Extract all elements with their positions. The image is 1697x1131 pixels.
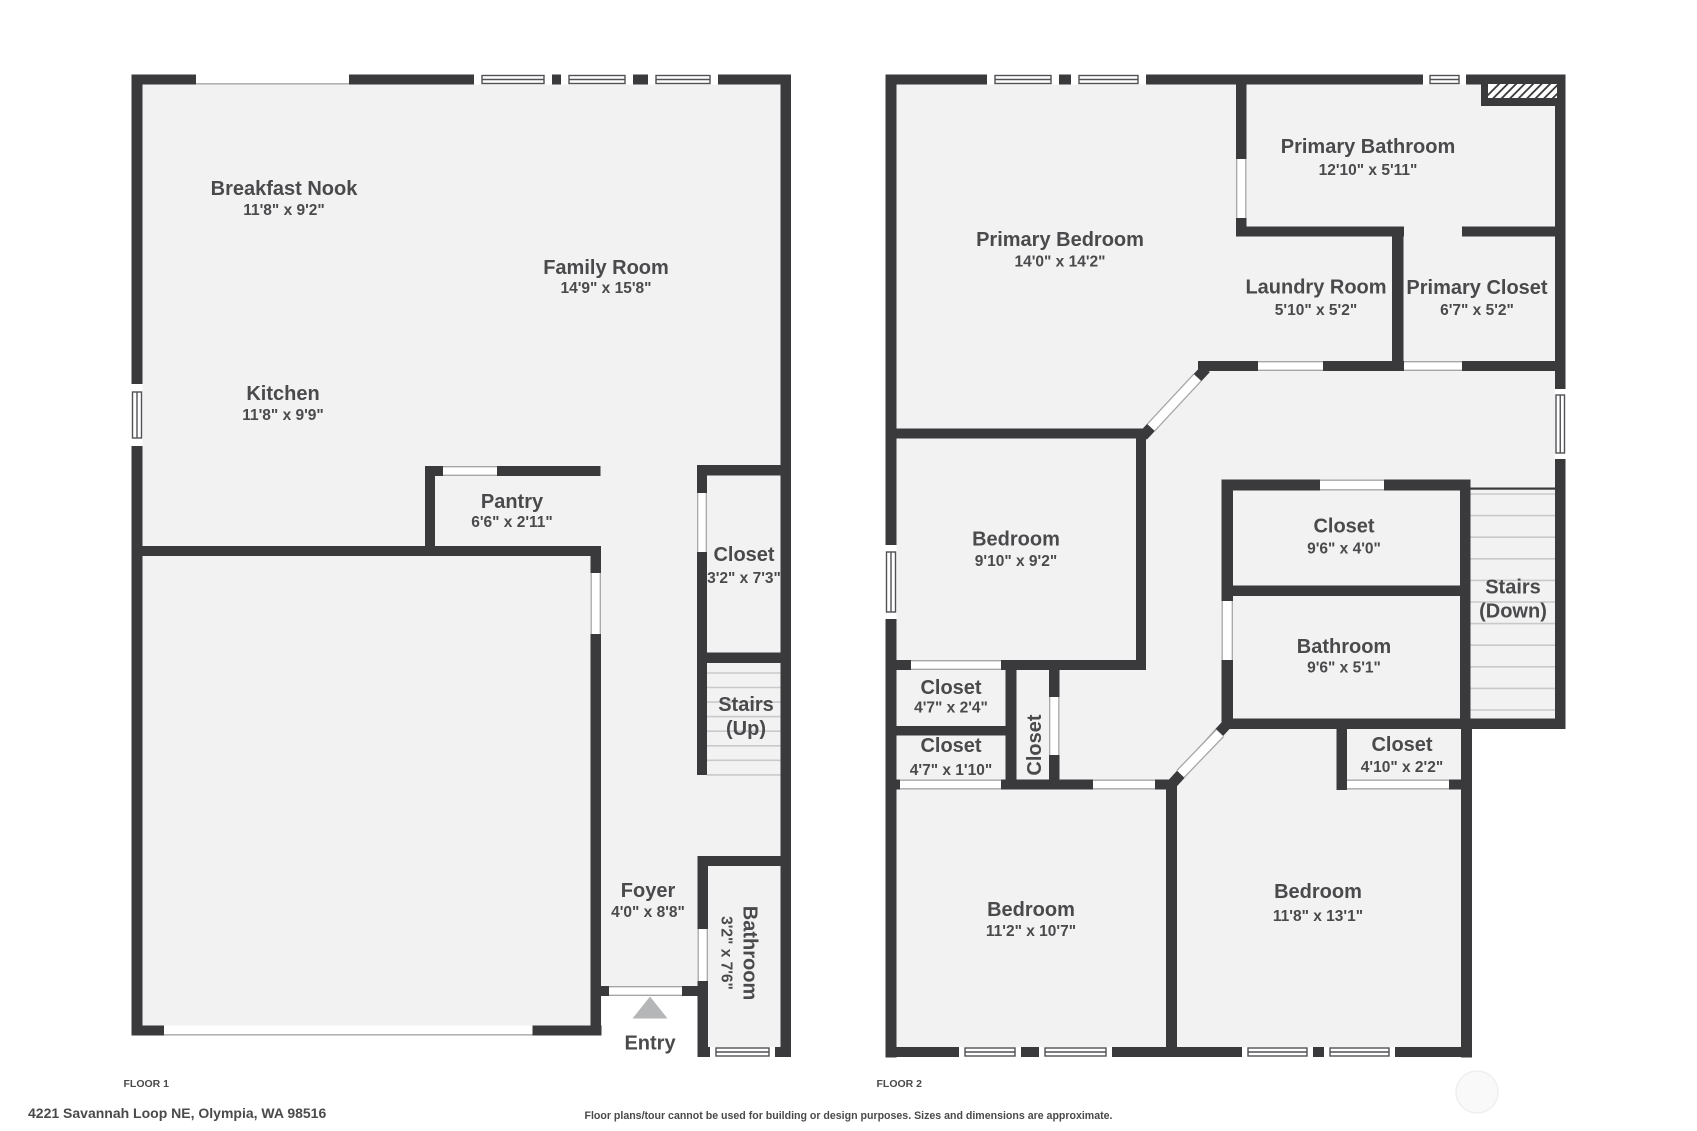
svg-text:Family Room: Family Room [543, 257, 669, 279]
svg-text:Pantry: Pantry [481, 491, 544, 513]
svg-text:9'6" x 5'1": 9'6" x 5'1" [1307, 660, 1381, 677]
svg-text:Closet: Closet [920, 735, 981, 757]
svg-text:Bedroom: Bedroom [1274, 881, 1362, 903]
svg-text:3'2" x 7'6": 3'2" x 7'6" [718, 916, 735, 990]
svg-text:4'7" x 2'4": 4'7" x 2'4" [914, 700, 988, 717]
svg-text:Foyer: Foyer [621, 880, 676, 902]
svg-text:Stairs: Stairs [718, 694, 774, 716]
svg-text:14'0" x 14'2": 14'0" x 14'2" [1014, 254, 1105, 271]
svg-text:Stairs: Stairs [1485, 577, 1541, 599]
svg-text:3'2" x 7'3": 3'2" x 7'3" [707, 570, 781, 587]
svg-text:Laundry Room: Laundry Room [1245, 277, 1386, 299]
svg-text:Closet: Closet [1024, 714, 1046, 775]
svg-text:Breakfast Nook: Breakfast Nook [211, 178, 359, 200]
svg-text:Bathroom: Bathroom [739, 906, 761, 1000]
svg-text:Primary Bedroom: Primary Bedroom [976, 229, 1144, 251]
svg-text:Floor plans/tour cannot be use: Floor plans/tour cannot be used for buil… [584, 1110, 1112, 1122]
svg-text:Closet: Closet [920, 677, 981, 699]
svg-text:Bathroom: Bathroom [1297, 636, 1391, 658]
svg-text:Closet: Closet [713, 544, 774, 566]
svg-text:6'7" x 5'2": 6'7" x 5'2" [1440, 302, 1514, 319]
svg-text:Primary Closet: Primary Closet [1406, 277, 1548, 299]
svg-text:9'10" x 9'2": 9'10" x 9'2" [975, 553, 1057, 570]
svg-text:11'2" x 10'7": 11'2" x 10'7" [986, 923, 1076, 940]
svg-text:FLOOR 2: FLOOR 2 [877, 1078, 923, 1090]
svg-text:4'0" x 8'8": 4'0" x 8'8" [611, 904, 685, 921]
svg-text:Primary Bathroom: Primary Bathroom [1281, 136, 1456, 158]
svg-text:12'10" x 5'11": 12'10" x 5'11" [1319, 162, 1418, 179]
svg-text:Kitchen: Kitchen [246, 383, 319, 405]
svg-text:4'7" x 1'10": 4'7" x 1'10" [910, 762, 992, 779]
svg-text:(Down): (Down) [1479, 601, 1547, 623]
svg-text:4221 Savannah Loop NE, Olympia: 4221 Savannah Loop NE, Olympia, WA 98516 [28, 1105, 326, 1121]
svg-text:Bedroom: Bedroom [987, 899, 1075, 921]
svg-text:9'6" x 4'0": 9'6" x 4'0" [1307, 541, 1381, 558]
svg-text:11'8" x 9'9": 11'8" x 9'9" [242, 407, 324, 424]
svg-text:Closet: Closet [1371, 734, 1432, 756]
svg-text:6'6" x 2'11": 6'6" x 2'11" [471, 514, 553, 531]
svg-text:11'8" x 9'2": 11'8" x 9'2" [243, 202, 325, 219]
svg-text:4'10" x 2'2": 4'10" x 2'2" [1361, 759, 1443, 776]
svg-text:Entry: Entry [624, 1033, 676, 1055]
svg-text:14'9" x 15'8": 14'9" x 15'8" [560, 280, 651, 297]
svg-text:5'10" x 5'2": 5'10" x 5'2" [1275, 302, 1357, 319]
svg-text:Closet: Closet [1313, 516, 1374, 538]
svg-text:(Up): (Up) [726, 718, 766, 740]
svg-text:FLOOR 1: FLOOR 1 [124, 1078, 170, 1090]
svg-text:Bedroom: Bedroom [972, 529, 1060, 551]
svg-text:11'8" x 13'1": 11'8" x 13'1" [1273, 908, 1363, 925]
